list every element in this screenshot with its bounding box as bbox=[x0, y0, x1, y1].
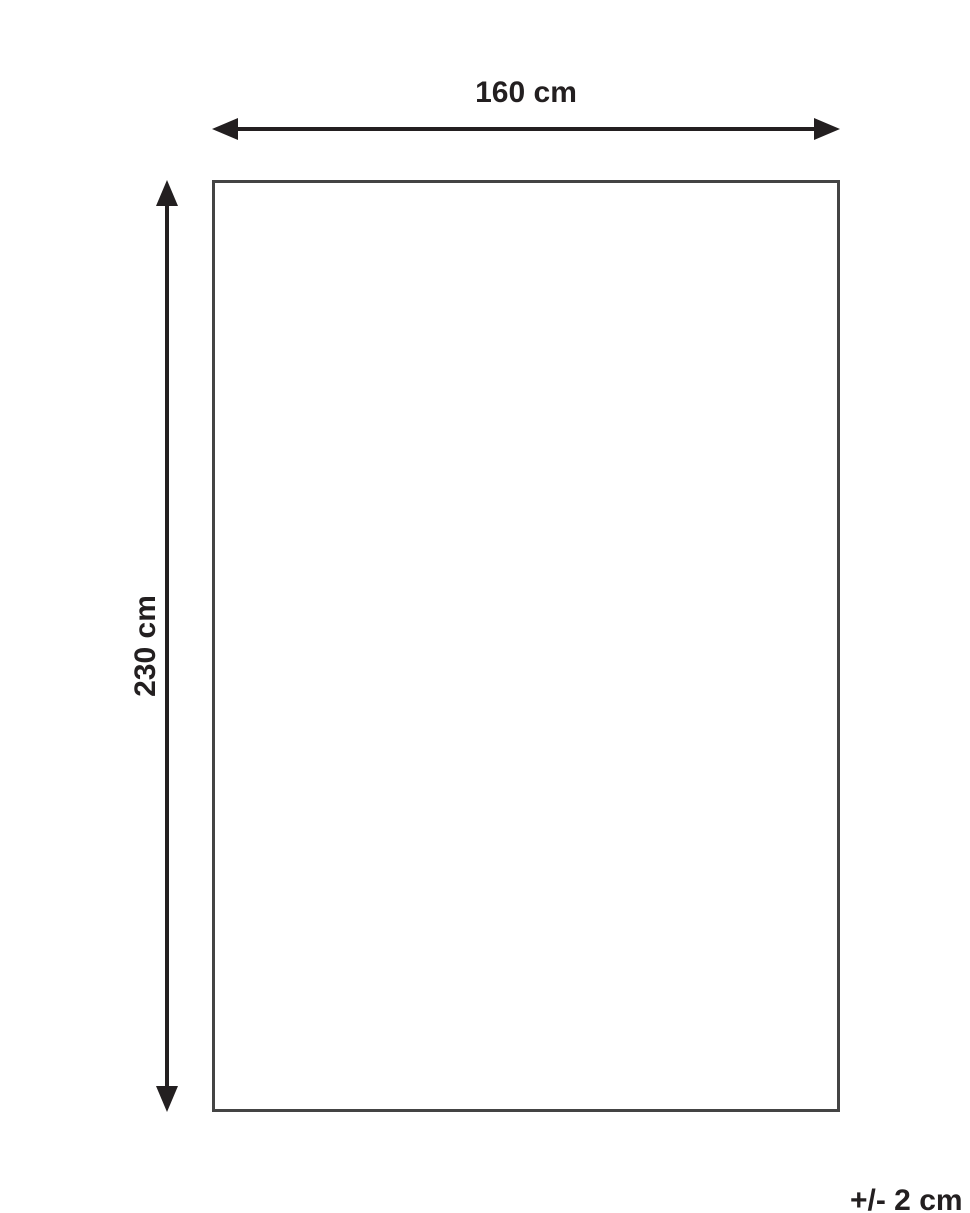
width-arrow-line bbox=[226, 127, 826, 131]
product-outline-rectangle bbox=[212, 180, 840, 1112]
height-arrow-line bbox=[165, 194, 169, 1098]
arrowhead-right-icon bbox=[814, 118, 840, 140]
arrowhead-down-icon bbox=[156, 1086, 178, 1112]
width-dimension-arrow bbox=[212, 117, 840, 141]
height-dimension-arrow bbox=[155, 180, 179, 1112]
dimension-diagram: 160 cm 230 cm +/- 2 cm bbox=[0, 0, 970, 1213]
width-dimension-label: 160 cm bbox=[212, 76, 840, 110]
tolerance-label: +/- 2 cm bbox=[850, 1184, 963, 1213]
